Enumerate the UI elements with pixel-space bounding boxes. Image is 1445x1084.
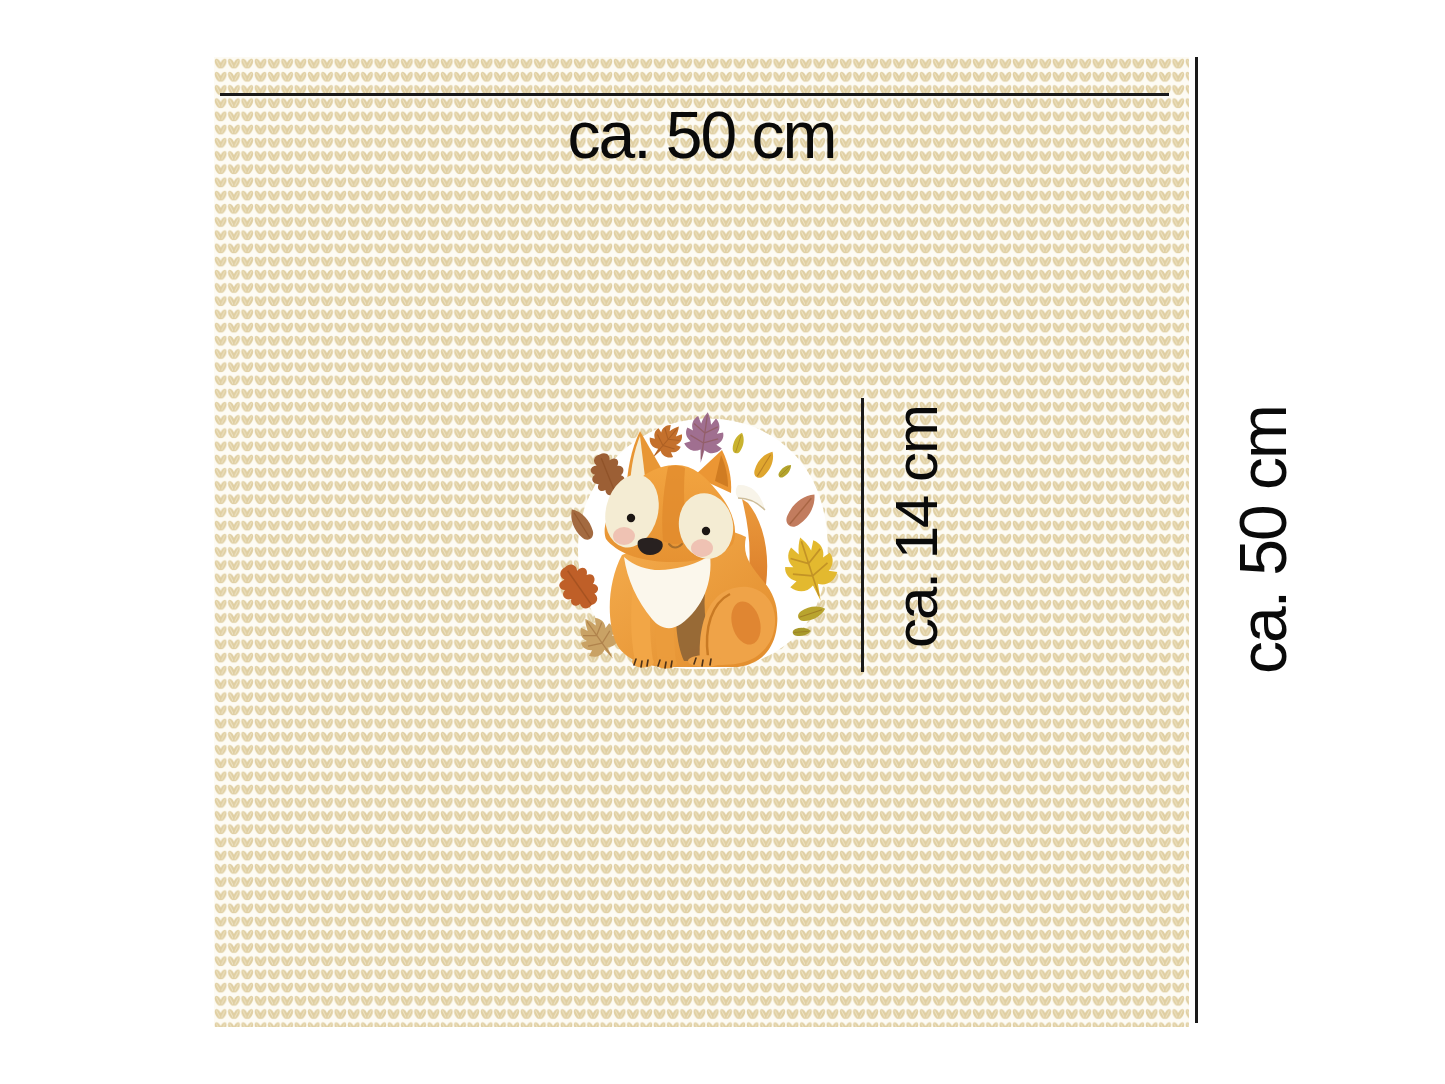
motif-measure-line xyxy=(861,398,864,672)
fox-eye-right xyxy=(702,527,710,535)
fox-blush-left xyxy=(613,527,635,545)
width-measure-line xyxy=(220,93,1169,96)
fox-illustration xyxy=(552,405,842,675)
height-label: ca. 50 cm xyxy=(1230,406,1296,674)
motif-height-label: ca. 14 cm xyxy=(887,406,947,648)
product-dimension-diagram: ca. 50 cm ca. 50 cm ca. 14 cm xyxy=(0,0,1445,1084)
height-measure-line xyxy=(1195,57,1198,1023)
fox-eye-left xyxy=(627,514,635,522)
fox-blush-right xyxy=(691,539,713,557)
width-label: ca. 50 cm xyxy=(214,102,1189,168)
